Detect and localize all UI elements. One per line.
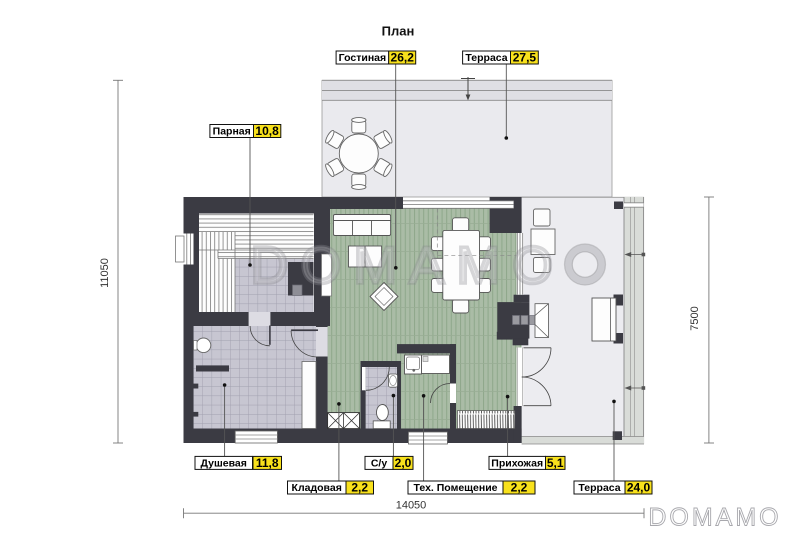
svg-text:Кладовая: Кладовая [292, 482, 342, 494]
svg-text:5,1: 5,1 [547, 456, 564, 470]
svg-text:DOMAMO: DOMAMO [251, 237, 566, 295]
svg-text:2,2: 2,2 [351, 481, 368, 495]
svg-text:Парная: Парная [213, 126, 251, 138]
svg-text:Гостиная: Гостиная [339, 52, 386, 64]
svg-text:Прихожая: Прихожая [491, 457, 543, 469]
svg-text:Тех. Помещение: Тех. Помещение [413, 482, 497, 494]
svg-text:27,5: 27,5 [513, 51, 537, 65]
svg-text:С/у: С/у [371, 457, 388, 469]
svg-text:Терраса: Терраса [578, 482, 620, 494]
svg-text:Терраса: Терраса [465, 52, 507, 64]
svg-text:14050: 14050 [396, 500, 427, 512]
svg-text:7500: 7500 [689, 306, 701, 330]
svg-text:План: План [382, 24, 415, 39]
svg-text:Душевая: Душевая [201, 457, 247, 469]
svg-text:24,0: 24,0 [627, 481, 651, 495]
svg-text:DOMAMO: DOMAMO [648, 504, 781, 532]
svg-text:10,8: 10,8 [255, 124, 279, 138]
svg-text:2,0: 2,0 [395, 456, 412, 470]
svg-text:11,8: 11,8 [256, 456, 279, 470]
svg-text:26,2: 26,2 [391, 51, 415, 65]
svg-text:11050: 11050 [99, 258, 111, 288]
svg-text:2,2: 2,2 [511, 481, 528, 495]
